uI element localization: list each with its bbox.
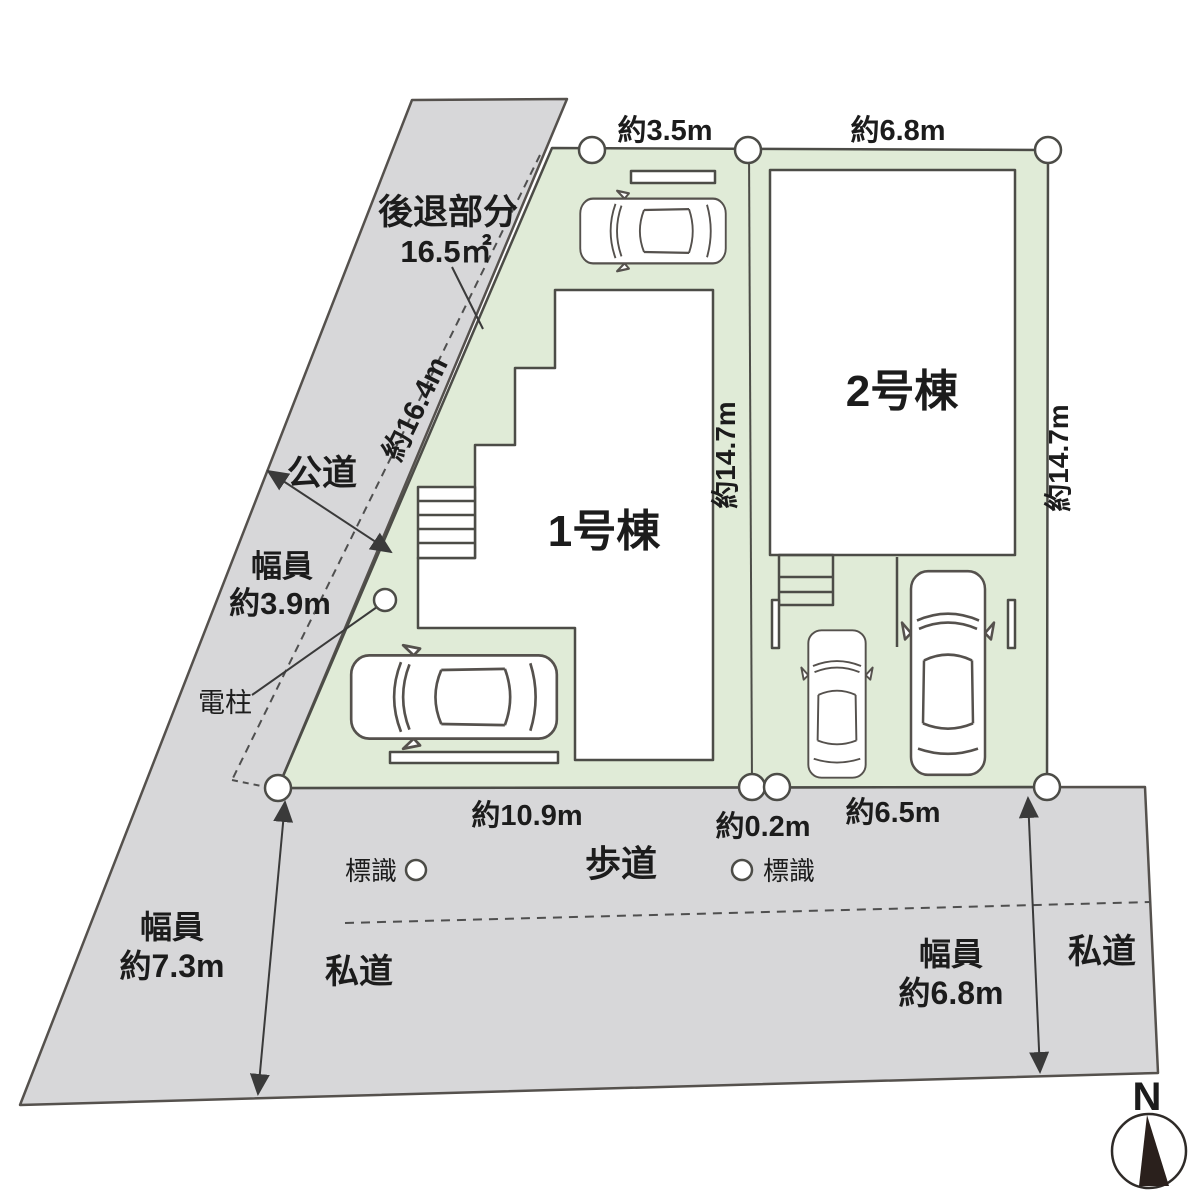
car-icon [351, 645, 557, 749]
compass-needle [1139, 1115, 1169, 1186]
sidewalk-label: 歩道 [585, 843, 657, 884]
private-road-left-label: 私道 [325, 953, 393, 991]
parking-stall-bar [772, 600, 779, 648]
setback-label: 後退部分 [378, 193, 518, 232]
site-plan-canvas: 後退部分 16.5㎡ 約16.4m 公道 幅員 約3.9m 電柱 約3.5m 約… [0, 0, 1200, 1200]
compass-n-label: N [1133, 1075, 1162, 1119]
boundary-point-marker [764, 774, 790, 800]
dim-lot2-top: 約6.8m [850, 113, 945, 147]
private-road-right-label: 私道 [1068, 933, 1136, 971]
dim-lot1-right: 約14.7m [709, 401, 741, 508]
site-plan-page: 後退部分 16.5㎡ 約16.4m 公道 幅員 約3.9m 電柱 約3.5m 約… [0, 0, 1200, 1200]
parking-stall-bar [390, 752, 558, 763]
boundary-point-marker [739, 774, 765, 800]
parking-stall-bar [1008, 600, 1015, 648]
sign-right-label: 標識 [763, 856, 815, 886]
sign-marker [406, 860, 426, 880]
building-1-label: 1号棟 [548, 507, 661, 556]
dim-lot2-bottom: 約6.5m [845, 795, 940, 829]
boundary-point-marker [1035, 137, 1061, 163]
compass-north-icon: N [1112, 1075, 1186, 1188]
dim-gap-bottom: 約0.2m [715, 809, 810, 843]
dim-lot2-right: 約14.7m [1042, 404, 1074, 511]
boundary-point-marker [735, 137, 761, 163]
public-road-label: 公道 [287, 454, 357, 493]
car-icon [902, 571, 994, 775]
road-width-left-caption: 幅員 [140, 909, 204, 945]
dim-lot1-bottom: 約10.9m [471, 798, 582, 832]
sign-marker [732, 860, 752, 880]
dim-lot1-top: 約3.5m [617, 113, 712, 147]
entrance-stairs-icon [418, 487, 475, 558]
boundary-point-marker [265, 775, 291, 801]
building-2-label: 2号棟 [846, 367, 959, 416]
car-icon [801, 630, 872, 777]
utility-pole-label: 電柱 [198, 688, 252, 718]
boundary-point-marker [1034, 774, 1060, 800]
boundary-point-marker [579, 137, 605, 163]
setback-area-label: 16.5㎡ [400, 234, 491, 269]
parking-stall-bar [631, 171, 715, 183]
road-width-right-caption: 幅員 [919, 936, 983, 972]
public-road-width-value: 約3.9m [229, 586, 331, 621]
road-width-right-value: 約6.8m [899, 975, 1004, 1011]
sign-left-label: 標識 [345, 856, 397, 886]
utility-pole-marker [374, 589, 396, 611]
public-road-width-caption: 幅員 [251, 549, 313, 584]
car-icon [580, 191, 726, 272]
road-width-left-value: 約7.3m [120, 948, 225, 984]
